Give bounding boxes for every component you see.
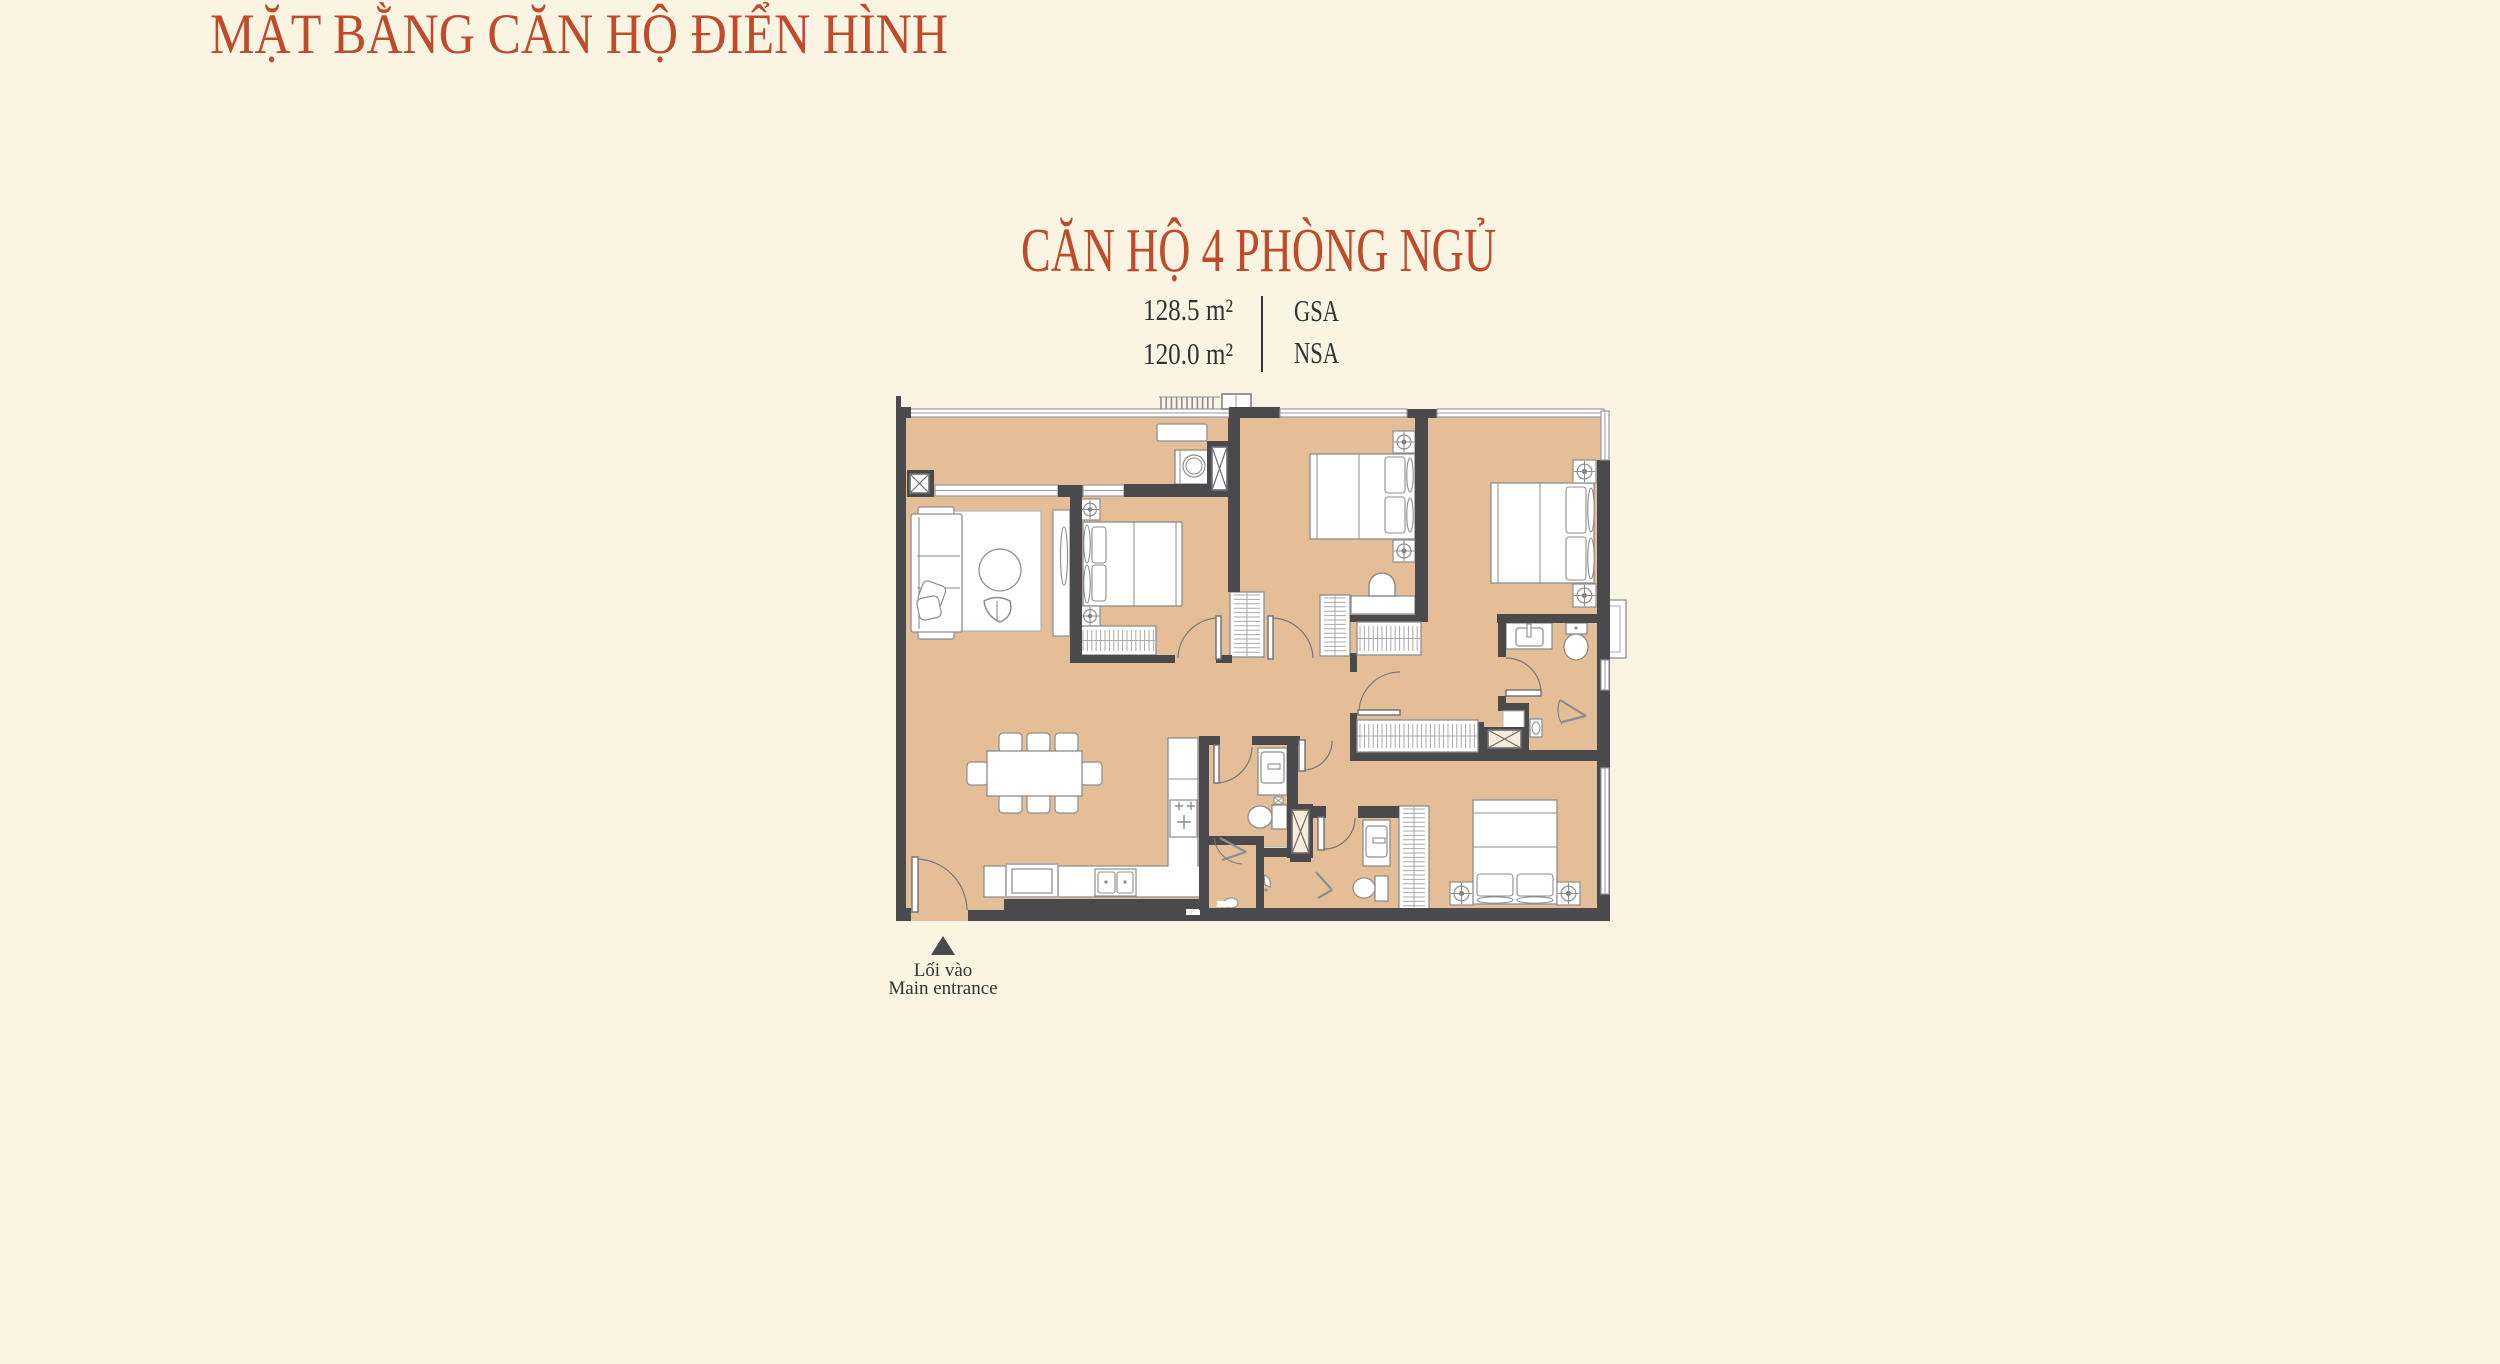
svg-text:NSA: NSA (1294, 335, 1339, 370)
svg-text:GSA: GSA (1294, 293, 1339, 328)
svg-text:120.0 m²: 120.0 m² (1143, 336, 1233, 371)
svg-text:MẶT BẰNG CĂN HỘ ĐIỂN HÌNH: MẶT BẰNG CĂN HỘ ĐIỂN HÌNH (210, 2, 948, 66)
svg-text:128.5 m²: 128.5 m² (1143, 292, 1233, 327)
svg-text:CĂN HỘ 4 PHÒNG NGỦ: CĂN HỘ 4 PHÒNG NGỦ (1021, 217, 1496, 285)
svg-text:Main entrance: Main entrance (888, 978, 997, 999)
